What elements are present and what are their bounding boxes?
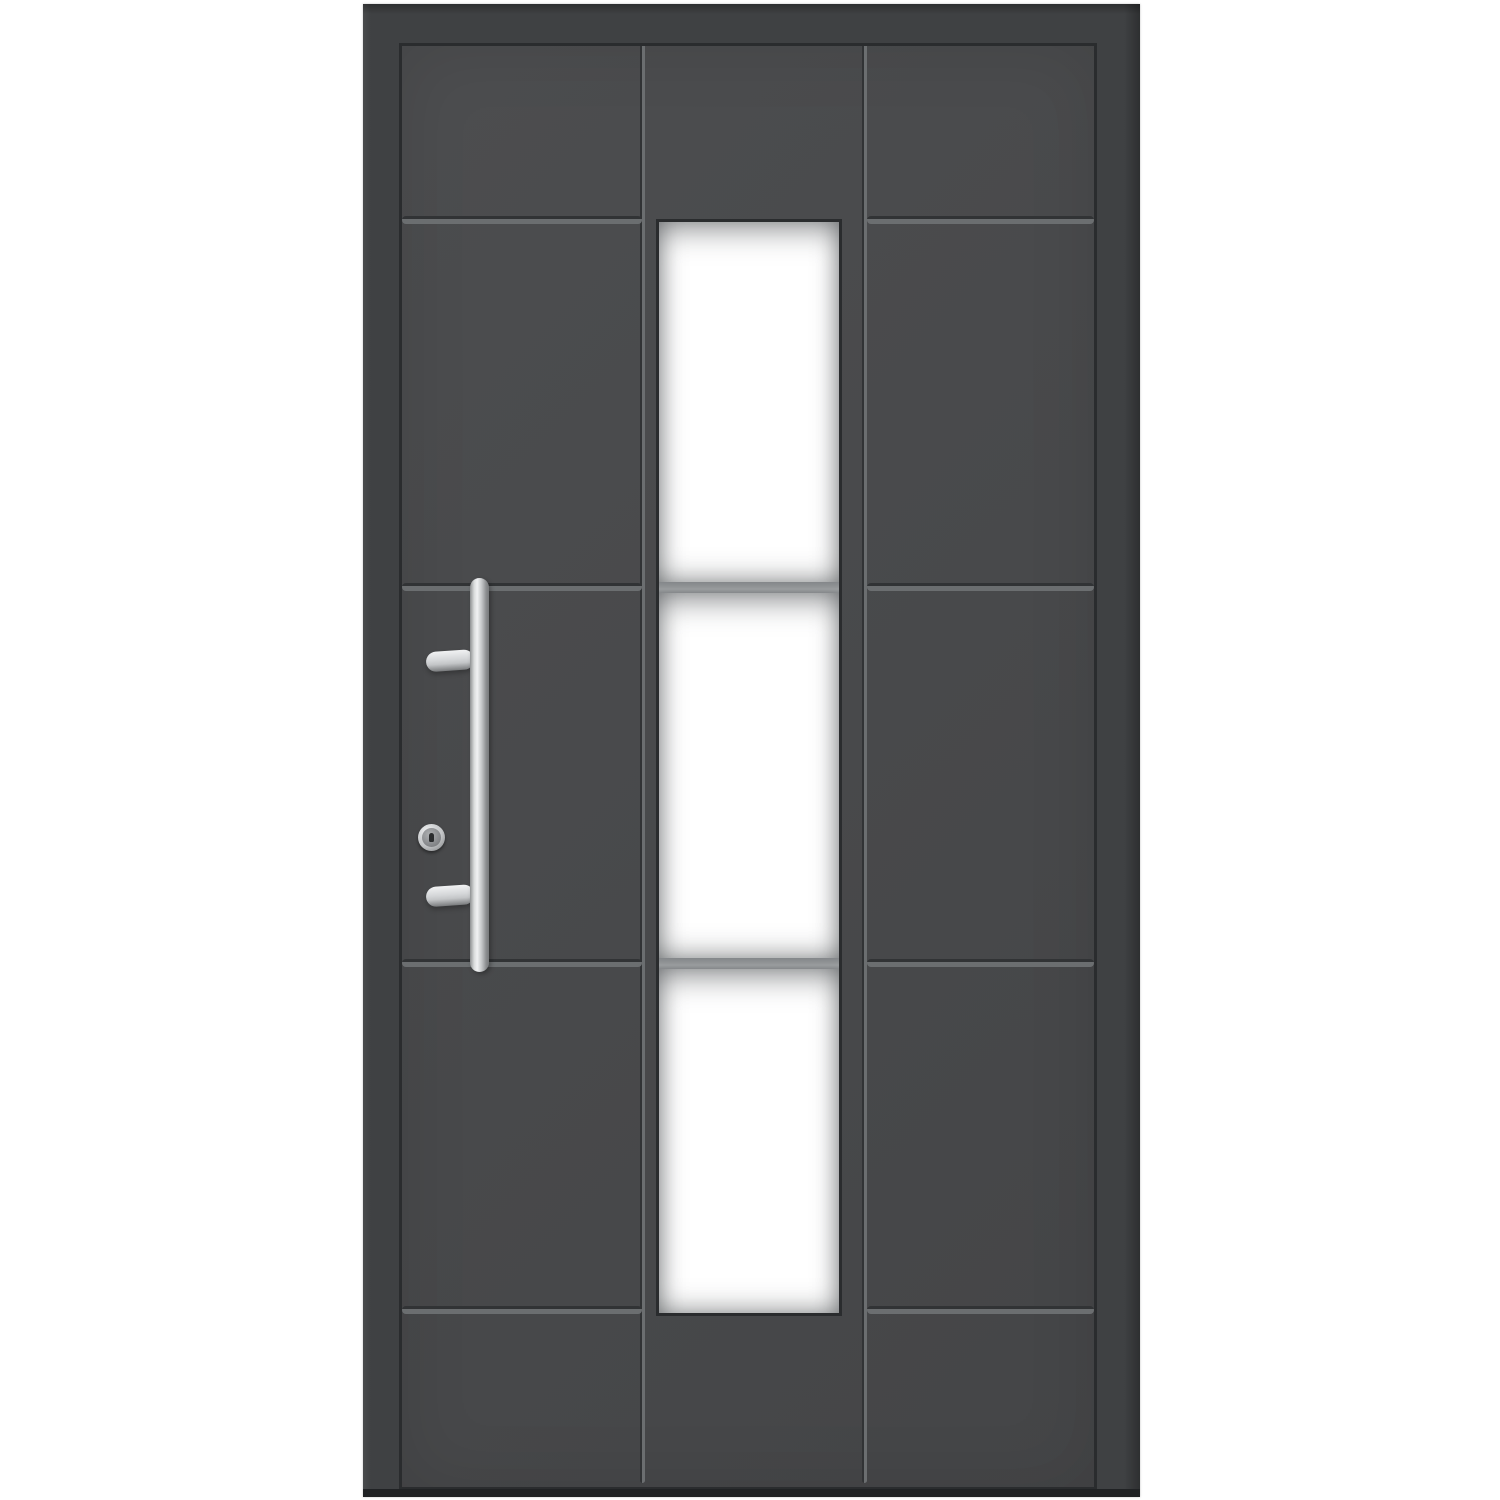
glass-divider-upper xyxy=(659,582,839,593)
vertical-groove-right xyxy=(862,46,867,1483)
glass-pane-bottom xyxy=(659,969,839,1313)
door-frame xyxy=(363,4,1140,1497)
door-leaf xyxy=(399,43,1097,1490)
horizontal-groove-right-4 xyxy=(867,1306,1094,1314)
lock-face xyxy=(422,828,441,847)
horizontal-groove-right-3 xyxy=(867,959,1094,967)
keyhole-icon xyxy=(429,833,434,842)
glass-pane-middle xyxy=(659,593,839,958)
glass-pane-top xyxy=(659,222,839,582)
handle-stem-lower xyxy=(425,884,474,907)
door-handle-bar xyxy=(470,578,489,972)
horizontal-groove-left-2 xyxy=(402,583,642,591)
handle-stem-upper xyxy=(425,649,474,672)
vertical-groove-left xyxy=(640,46,645,1483)
horizontal-groove-left-3 xyxy=(402,959,642,967)
lock-cylinder xyxy=(418,824,445,851)
glass-panel xyxy=(656,219,842,1316)
horizontal-groove-right-1 xyxy=(867,216,1094,224)
horizontal-groove-right-2 xyxy=(867,583,1094,591)
glass-divider-lower xyxy=(659,958,839,969)
door-threshold xyxy=(363,1489,1140,1497)
product-photo xyxy=(0,0,1500,1500)
horizontal-groove-left-4 xyxy=(402,1306,642,1314)
horizontal-groove-left-1 xyxy=(402,216,642,224)
